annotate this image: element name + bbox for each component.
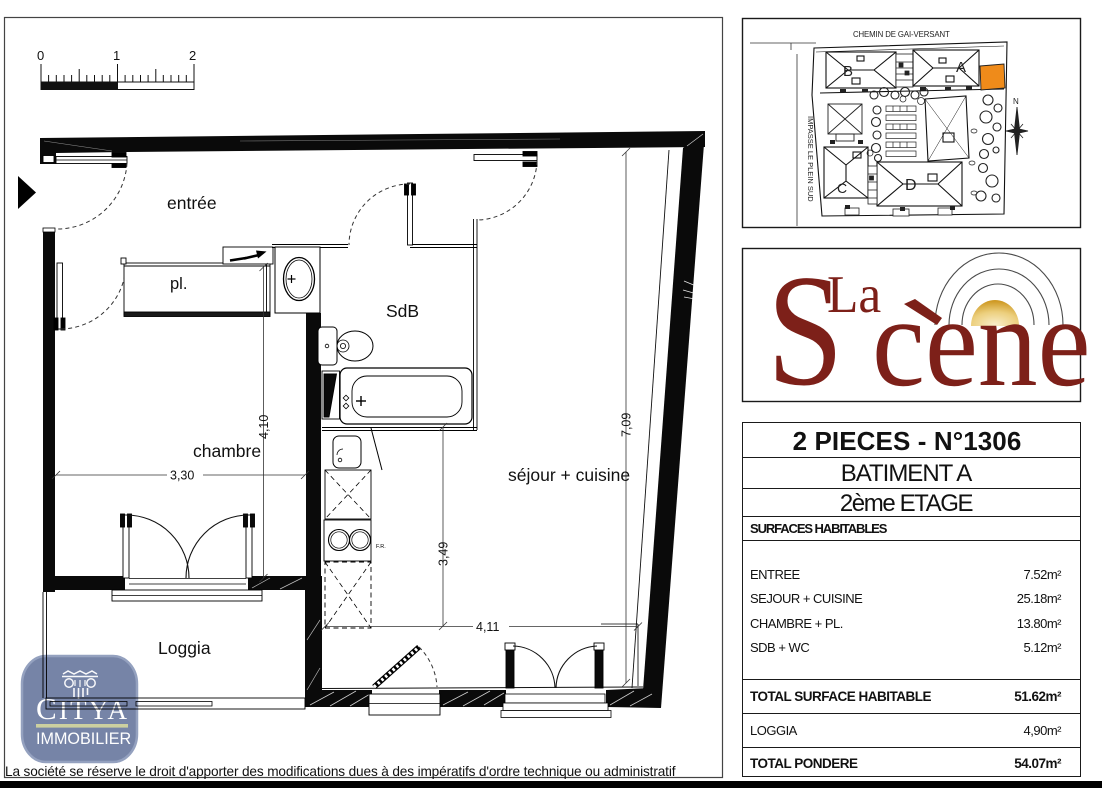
svg-text:N: N <box>1013 97 1019 106</box>
svg-text:0: 0 <box>37 48 44 63</box>
svg-text:4,10: 4,10 <box>257 415 271 439</box>
svg-text:C: C <box>837 180 847 196</box>
svg-text:entrée: entrée <box>167 193 217 213</box>
svg-text:CHEMIN DE GAI-VERSANT: CHEMIN DE GAI-VERSANT <box>853 30 950 39</box>
svg-text:chambre: chambre <box>193 441 261 461</box>
svg-text:F.R.: F.R. <box>376 544 386 550</box>
svg-text:Loggia: Loggia <box>158 638 211 658</box>
svg-text:pl.: pl. <box>170 275 187 293</box>
svg-text:SdB: SdB <box>386 301 419 321</box>
svg-text:cene: cene <box>872 270 1091 413</box>
svg-text:7,09: 7,09 <box>620 413 634 437</box>
svg-text:CITYA: CITYA <box>36 691 129 726</box>
svg-text:2: 2 <box>189 48 196 63</box>
svg-text:4,11: 4,11 <box>476 620 499 634</box>
svg-text:1: 1 <box>113 48 120 63</box>
svg-text:IMMOBILIER: IMMOBILIER <box>36 730 131 748</box>
svg-text:D: D <box>905 177 917 194</box>
svg-text:S: S <box>767 242 844 419</box>
svg-text:3,30: 3,30 <box>170 469 194 483</box>
svg-text:IMPASSE LE PLEIN SUD: IMPASSE LE PLEIN SUD <box>806 116 815 202</box>
svg-text:B: B <box>843 63 853 80</box>
svg-text:A: A <box>956 59 966 76</box>
svg-text:séjour + cuisine: séjour + cuisine <box>508 465 630 485</box>
svg-text:3,49: 3,49 <box>437 542 451 566</box>
